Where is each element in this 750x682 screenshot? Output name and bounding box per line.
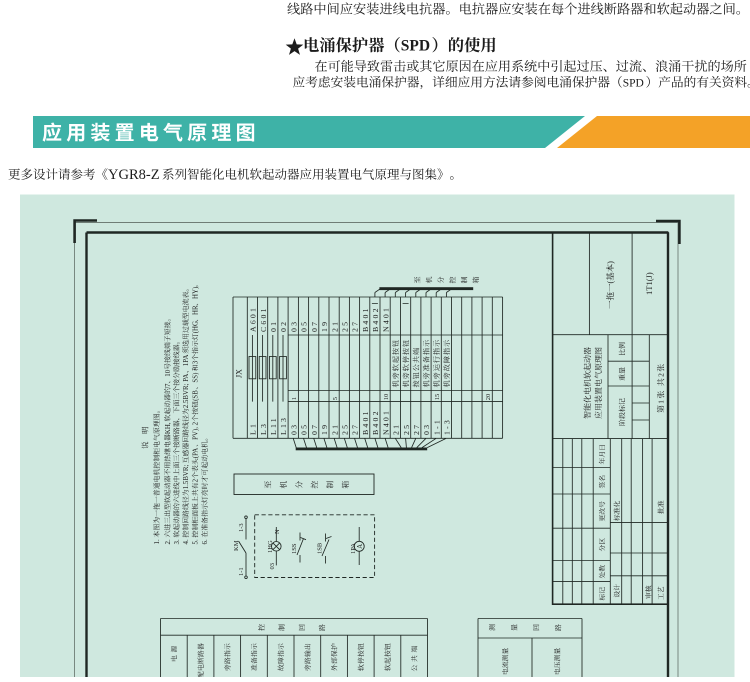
svg-text:(PA: (PA — [193, 448, 200, 458]
svg-text:19: 19 — [320, 320, 329, 332]
svg-text:25: 25 — [341, 320, 350, 332]
svg-text:05: 05 — [300, 423, 309, 435]
svg-text:27: 27 — [412, 423, 421, 435]
svg-text:21: 21 — [330, 423, 339, 435]
svg-text:21: 21 — [330, 320, 339, 332]
svg-text:N: N — [274, 529, 281, 534]
svg-text:2: 2 — [657, 372, 666, 377]
svg-text:1PA: 1PA — [183, 355, 190, 367]
svg-text:YGR8-Z: YGR8-Z — [108, 167, 160, 183]
svg-text:SPD: SPD — [401, 37, 430, 54]
svg-text:1SB: 1SB — [316, 542, 323, 554]
svg-text:N401: N401 — [381, 409, 390, 435]
svg-text:HY): HY) — [193, 287, 200, 299]
svg-text:B402: B402 — [371, 409, 380, 435]
svg-text:PV), 2: PV), 2 — [193, 421, 200, 440]
svg-text:): ) — [606, 261, 615, 264]
svg-text:4.: 4. — [183, 539, 190, 544]
svg-text:21: 21 — [392, 423, 401, 435]
svg-text:15: 15 — [434, 394, 441, 401]
svg-text:JX: JX — [235, 369, 244, 378]
svg-text:03: 03 — [269, 563, 276, 570]
svg-text:6.: 6. — [202, 539, 209, 544]
svg-text:KH,: KH, — [165, 422, 172, 434]
svg-text:1-3: 1-3 — [443, 418, 452, 435]
svg-text:1HG: 1HG — [267, 540, 274, 553]
svg-text:N401: N401 — [381, 306, 390, 332]
svg-text:05: 05 — [300, 320, 309, 332]
svg-text:B401: B401 — [361, 409, 370, 435]
svg-text:07: 07 — [310, 320, 319, 332]
svg-text:L11: L11 — [269, 416, 278, 435]
svg-text:1-3: 1-3 — [238, 523, 245, 532]
svg-text:L13: L13 — [279, 416, 288, 435]
svg-text:1PA: 1PA — [350, 543, 357, 554]
svg-text:HR: HR — [193, 305, 200, 315]
svg-text:3.: 3. — [174, 539, 181, 544]
svg-text:B401: B401 — [361, 306, 370, 332]
svg-text:27: 27 — [351, 423, 360, 435]
svg-text:B402: B402 — [371, 306, 380, 332]
svg-text:03: 03 — [289, 423, 298, 435]
svg-text:(HG: (HG — [193, 321, 200, 333]
svg-text:25: 25 — [402, 423, 411, 435]
svg-text:25: 25 — [341, 423, 350, 435]
svg-text:C601: C601 — [259, 306, 268, 332]
svg-text:L1: L1 — [249, 422, 258, 435]
svg-text:5.: 5. — [193, 539, 200, 544]
svg-text:01: 01 — [269, 320, 278, 332]
svg-text:2: 2 — [193, 478, 200, 482]
svg-text:7: 7 — [165, 383, 172, 387]
svg-text:07: 07 — [310, 423, 319, 435]
svg-text:1: 1 — [657, 399, 666, 404]
svg-text:5: 5 — [332, 397, 339, 400]
svg-text:A601: A601 — [249, 306, 258, 332]
svg-text:3: 3 — [193, 360, 200, 364]
svg-text:27: 27 — [351, 320, 360, 332]
svg-text:20: 20 — [485, 394, 492, 401]
svg-text:1-1: 1-1 — [238, 567, 245, 576]
svg-text:2.5BVR; PA: 2.5BVR; PA — [183, 374, 190, 409]
svg-text:A: A — [356, 544, 364, 549]
svg-text:(SB: (SB — [193, 390, 200, 401]
svg-text:02: 02 — [279, 320, 288, 332]
svg-text:10: 10 — [165, 369, 172, 376]
svg-text:SS): SS) — [193, 373, 200, 383]
svg-text:L3: L3 — [259, 422, 268, 435]
svg-text:1.5BVR;: 1.5BVR; — [183, 465, 190, 490]
svg-text:1: 1 — [291, 397, 298, 400]
svg-text:03: 03 — [289, 320, 298, 332]
svg-text:1T1(J): 1T1(J) — [644, 272, 654, 295]
svg-text:1.: 1. — [154, 539, 161, 544]
svg-text:(: ( — [606, 281, 615, 284]
svg-text:2.: 2. — [165, 539, 172, 544]
svg-text:KM: KM — [233, 540, 240, 551]
svg-text:03: 03 — [422, 423, 431, 435]
svg-text:SPD: SPD — [623, 78, 644, 90]
svg-text:19: 19 — [320, 423, 329, 435]
svg-text:10: 10 — [383, 394, 390, 401]
svg-text:1SS: 1SS — [291, 543, 298, 554]
svg-text:1-1: 1-1 — [432, 418, 441, 435]
